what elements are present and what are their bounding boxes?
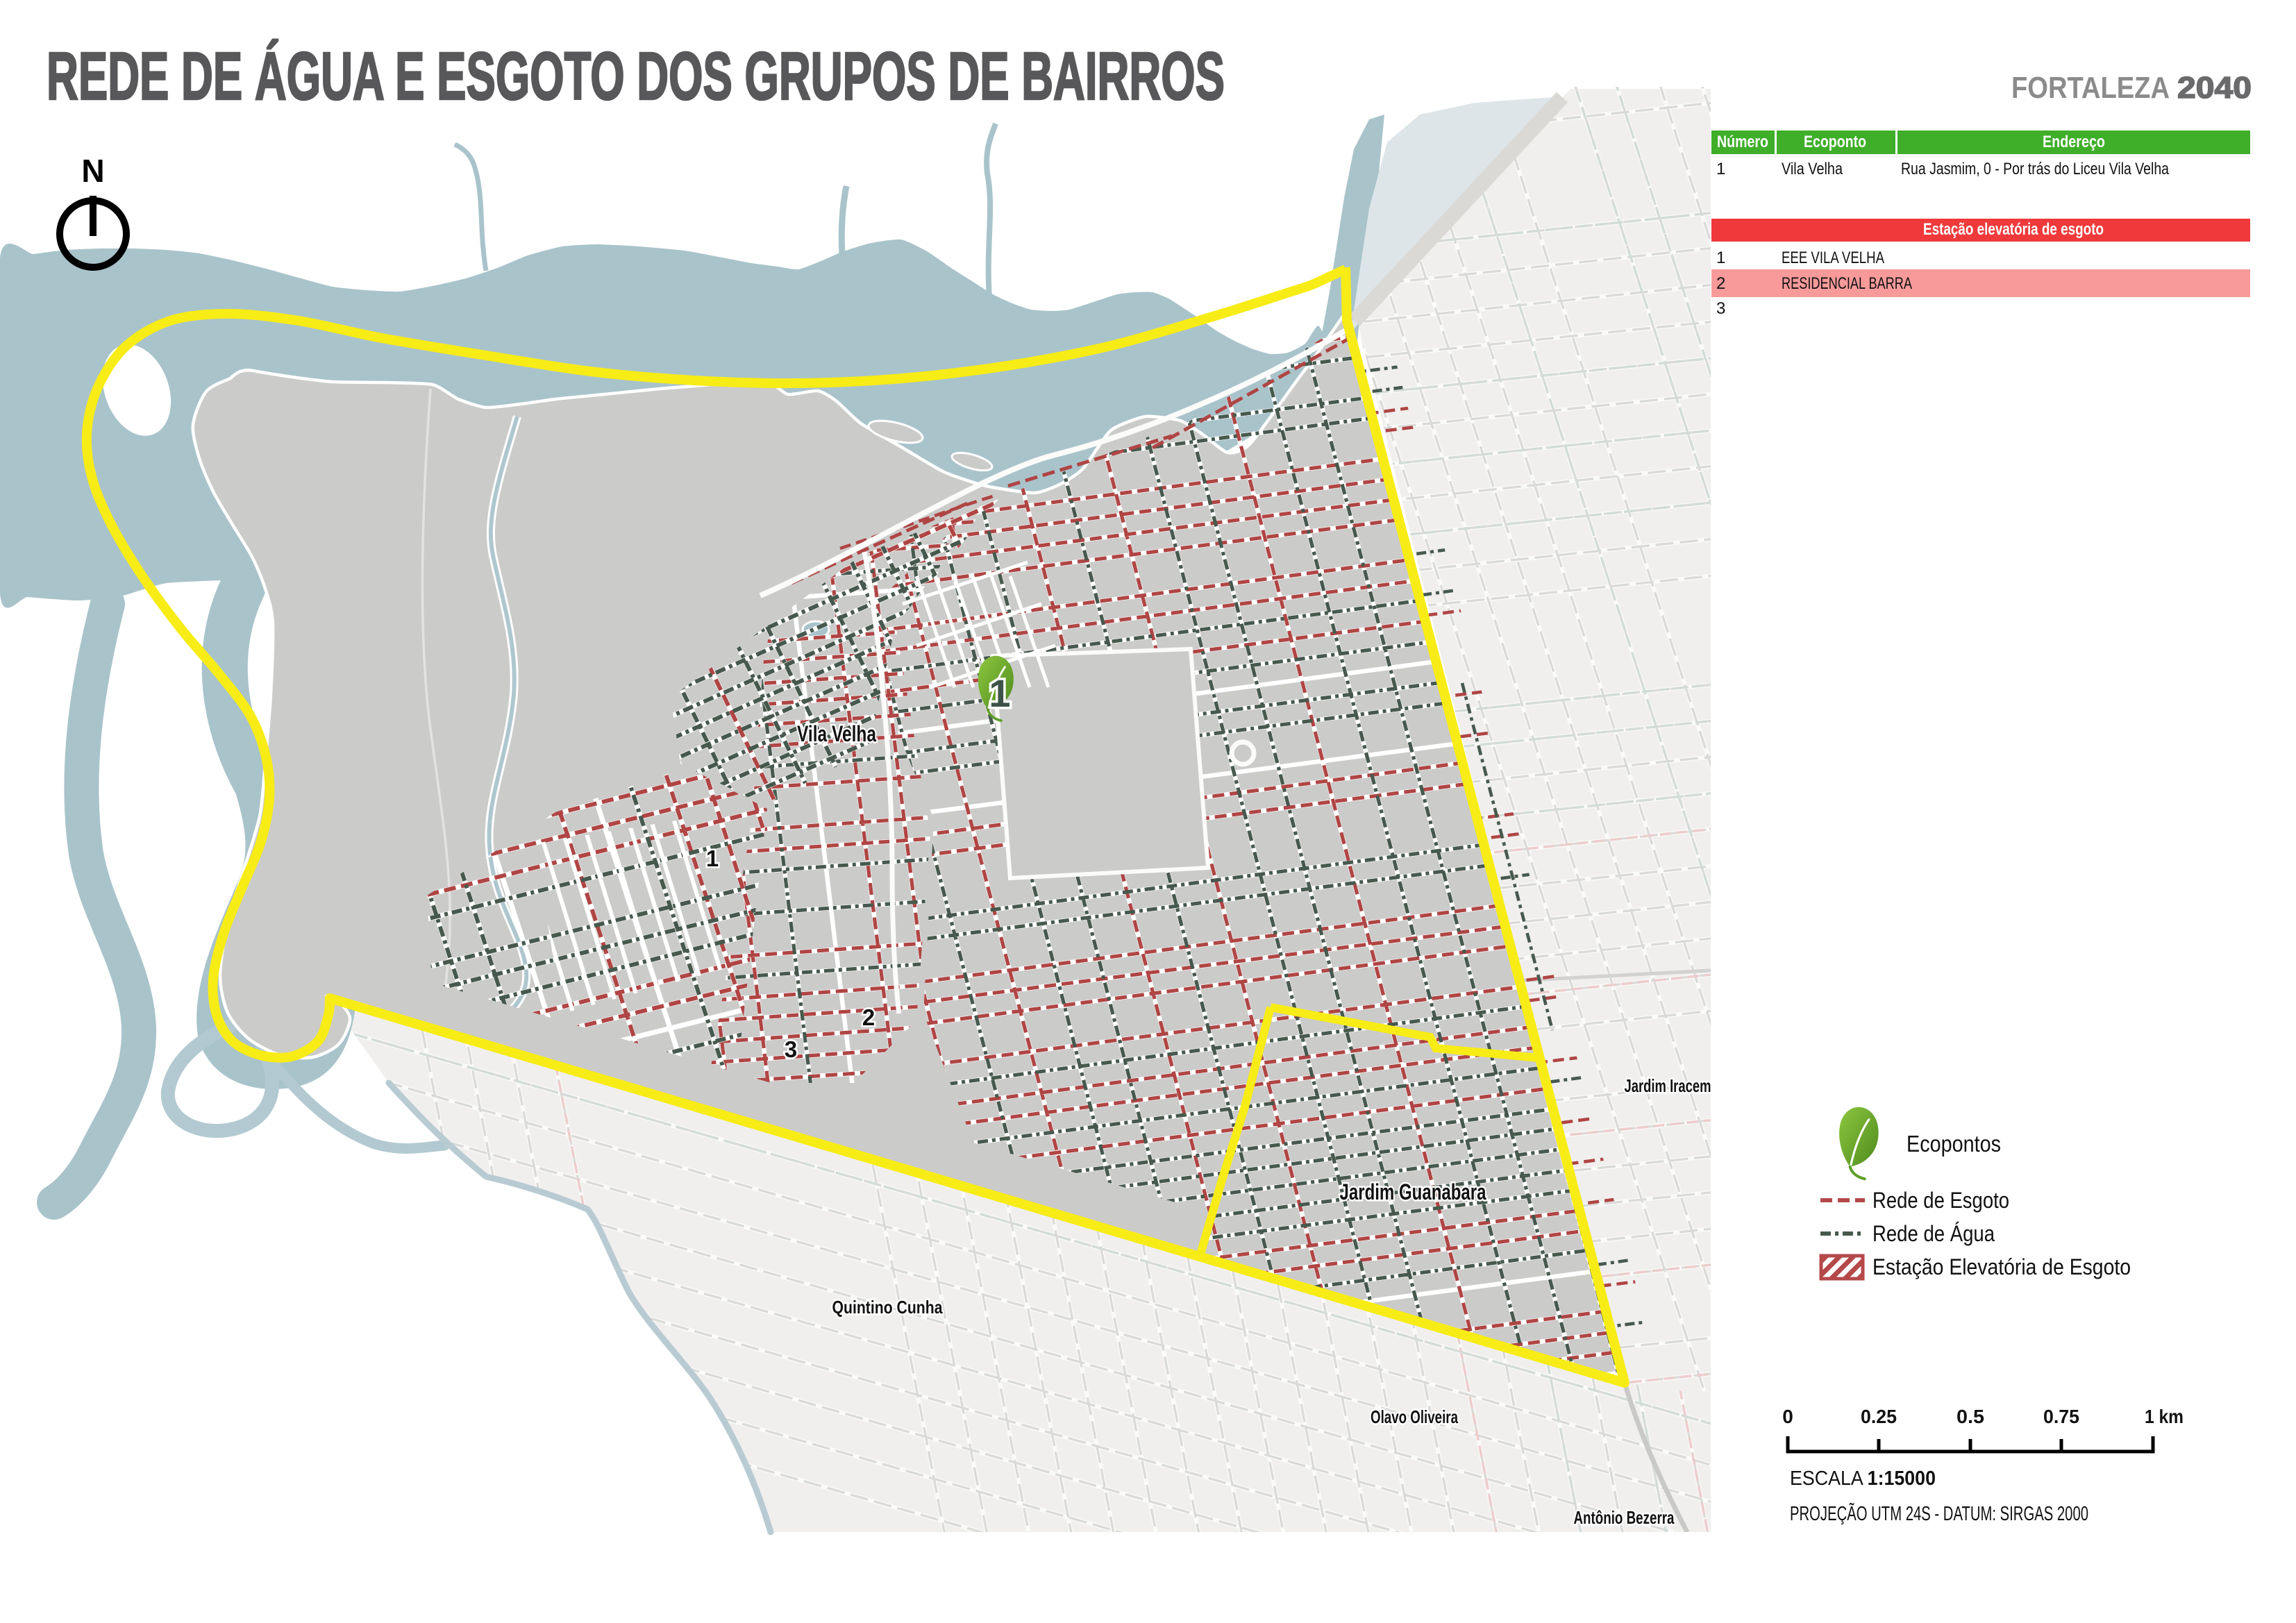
svg-text:0.5: 0.5 — [1956, 1406, 1984, 1427]
svg-text:Rede de Água: Rede de Água — [1872, 1221, 1995, 1246]
svg-text:Ecoponto: Ecoponto — [1804, 133, 1866, 151]
svg-text:Número: Número — [1717, 133, 1768, 151]
svg-text:FORTALEZA: FORTALEZA — [2011, 71, 2170, 105]
svg-text:Jardim Iracem: Jardim Iracem — [1625, 1075, 1711, 1096]
svg-text:Jardim Guanabara: Jardim Guanabara — [1340, 1179, 1486, 1204]
svg-text:Vila Velha: Vila Velha — [797, 721, 876, 746]
svg-text:Vila Velha: Vila Velha — [1782, 160, 1843, 178]
svg-text:1: 1 — [1716, 249, 1725, 267]
svg-text:1: 1 — [989, 671, 1010, 715]
svg-text:3: 3 — [785, 1036, 797, 1062]
svg-text:0.75: 0.75 — [2043, 1406, 2079, 1427]
svg-text:Quintino Cunha: Quintino Cunha — [832, 1297, 943, 1318]
svg-text:1: 1 — [1716, 160, 1725, 178]
svg-text:RESIDENCIAL BARRA: RESIDENCIAL BARRA — [1782, 274, 1912, 293]
svg-text:Endereço: Endereço — [2043, 133, 2105, 151]
svg-text:N: N — [81, 153, 104, 189]
svg-text:2: 2 — [1716, 274, 1725, 293]
svg-text:2: 2 — [862, 1004, 875, 1030]
svg-text:1: 1 — [706, 846, 719, 871]
svg-text:0.25: 0.25 — [1861, 1406, 1897, 1427]
svg-text:Rua Jasmim, 0 - Por trás do Li: Rua Jasmim, 0 - Por trás do Liceu Vila V… — [1901, 160, 2170, 178]
svg-text:Rede de Esgoto: Rede de Esgoto — [1872, 1188, 2009, 1213]
svg-text:Estação elevatória de esgoto: Estação elevatória de esgoto — [1923, 220, 2104, 239]
svg-text:1 km: 1 km — [2145, 1406, 2184, 1427]
svg-text:ESCALA 1:15000: ESCALA 1:15000 — [1790, 1468, 1936, 1490]
svg-text:Olavo Oliveira: Olavo Oliveira — [1371, 1406, 1458, 1427]
svg-text:PROJEÇÃO UTM 24S - DATUM: SIRG: PROJEÇÃO UTM 24S - DATUM: SIRGAS 2000 — [1790, 1502, 2088, 1525]
svg-text:EEE VILA VELHA: EEE VILA VELHA — [1782, 249, 1884, 267]
svg-text:Estação Elevatória de Esgoto: Estação Elevatória de Esgoto — [1872, 1254, 2131, 1279]
svg-text:REDE DE ÁGUA E ESGOTO DOS GRUP: REDE DE ÁGUA E ESGOTO DOS GRUPOS DE BAIR… — [47, 38, 1225, 114]
svg-text:Antônio Bezerra: Antônio Bezerra — [1574, 1507, 1675, 1528]
svg-text:3: 3 — [1716, 299, 1725, 318]
svg-text:0: 0 — [1782, 1406, 1793, 1427]
svg-text:2040: 2040 — [2177, 71, 2252, 105]
svg-text:Ecopontos: Ecopontos — [1907, 1131, 2001, 1157]
